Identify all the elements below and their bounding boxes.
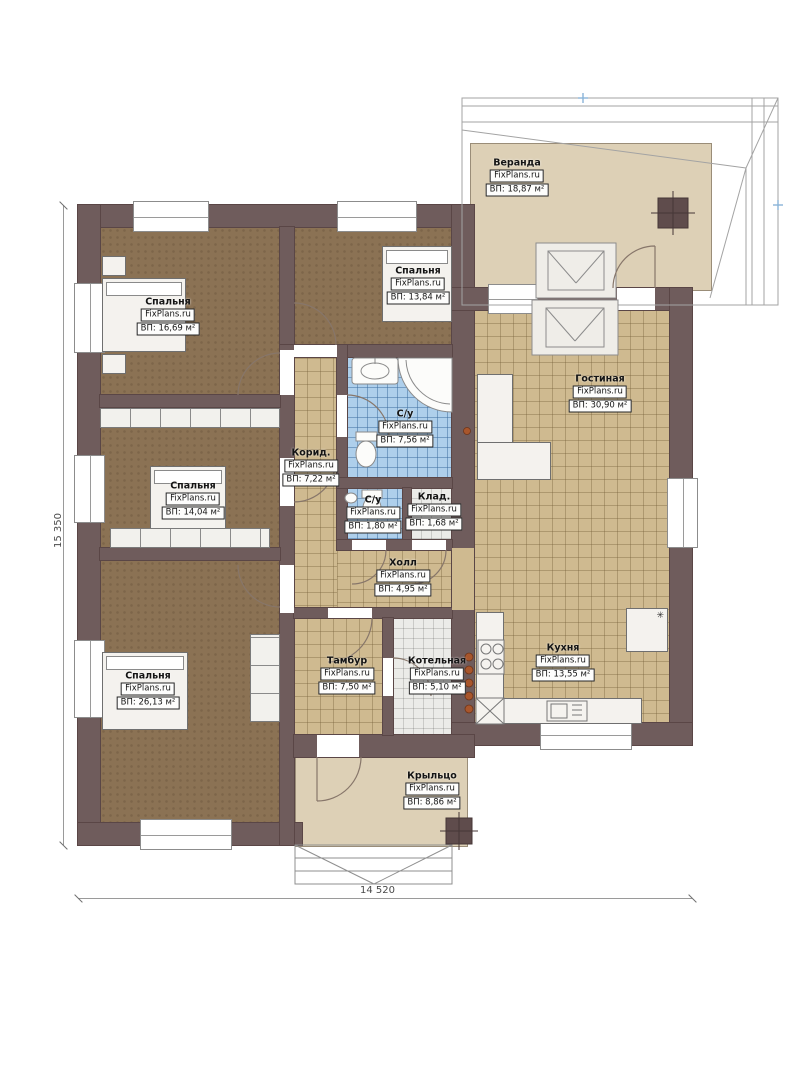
watermark: FixPlans.ru	[378, 421, 432, 434]
room-area: ВП: 18,87 м²	[486, 184, 549, 197]
room-name: Тамбур	[327, 656, 367, 667]
room-label-wc: С/у FixPlans.ru ВП: 1,80 м²	[344, 495, 401, 534]
window	[74, 283, 105, 353]
fridge: ✳	[626, 608, 668, 652]
room-label-hall: Холл FixPlans.ru ВП: 4,95 м²	[374, 558, 431, 597]
room-area: ВП: 5,10 м²	[408, 682, 465, 695]
room-area: ВП: 14,04 м²	[162, 507, 225, 520]
room-label-bedroom-3: Спальня FixPlans.ru ВП: 14,04 м²	[162, 481, 225, 520]
room-label-storage: Клад. FixPlans.ru ВП: 1,68 м²	[405, 492, 462, 531]
room-label-veranda: Веранда FixPlans.ru ВП: 18,87 м²	[486, 158, 549, 197]
floor-plan: ✳	[0, 0, 792, 1080]
door-opening-bedroom-1	[280, 350, 294, 395]
window	[667, 478, 698, 548]
watermark: FixPlans.ru	[410, 668, 464, 681]
wall-bathroom-bottom	[337, 478, 452, 488]
room-area: ВП: 7,50 м²	[318, 682, 375, 695]
door-opening-bedroom-2	[294, 345, 337, 357]
room-label-corridor: Корид. FixPlans.ru ВП: 7,22 м²	[282, 448, 339, 487]
room-area: ВП: 7,22 м²	[282, 474, 339, 487]
kitchen-counter	[476, 612, 504, 704]
door-opening-storage	[412, 540, 446, 550]
room-name: Спальня	[170, 481, 216, 492]
room-area: ВП: 4,95 м²	[374, 584, 431, 597]
watermark: FixPlans.ru	[407, 504, 461, 517]
wardrobe	[100, 408, 280, 428]
room-name: Веранда	[493, 158, 541, 169]
watermark: FixPlans.ru	[573, 386, 627, 399]
room-label-bedroom-2: Спальня FixPlans.ru ВП: 13,84 м²	[387, 266, 450, 305]
watermark: FixPlans.ru	[166, 493, 220, 506]
room-area: ВП: 13,55 м²	[532, 669, 595, 682]
room-name: Спальня	[125, 671, 171, 682]
dimension-line-bottom	[78, 898, 692, 899]
room-name: Крыльцо	[407, 771, 457, 782]
door-opening-bathroom	[337, 395, 347, 437]
room-name: Котельная	[408, 656, 466, 667]
watermark: FixPlans.ru	[346, 507, 400, 520]
wall-hall-bottom	[294, 608, 452, 618]
sofa	[477, 442, 551, 480]
room-label-boiler-room: Котельная FixPlans.ru ВП: 5,10 м²	[408, 656, 466, 695]
room-area: ВП: 30,90 м²	[569, 400, 632, 413]
watermark: FixPlans.ru	[376, 570, 430, 583]
window	[337, 201, 417, 232]
watermark: FixPlans.ru	[536, 655, 590, 668]
window	[140, 819, 232, 850]
wardrobe	[250, 634, 280, 722]
door-opening-boiler	[383, 658, 393, 696]
room-name: Гостиная	[575, 374, 624, 385]
kitchen-counter	[476, 698, 642, 724]
wall-bedroom1-bedroom3	[100, 395, 280, 407]
room-area: ВП: 8,86 м²	[403, 797, 460, 810]
room-label-bedroom-1: Спальня FixPlans.ru ВП: 16,69 м²	[137, 297, 200, 336]
room-name: Кухня	[547, 643, 580, 654]
door-opening-veranda	[617, 288, 655, 310]
watermark: FixPlans.ru	[391, 278, 445, 291]
room-area: ВП: 13,84 м²	[387, 292, 450, 305]
watermark: FixPlans.ru	[320, 668, 374, 681]
door-opening-bedroom-4	[280, 565, 294, 613]
window	[133, 201, 209, 232]
watermark: FixPlans.ru	[121, 683, 175, 696]
room-area: ВП: 1,68 м²	[405, 518, 462, 531]
watermark: FixPlans.ru	[405, 783, 459, 796]
window	[488, 284, 538, 314]
watermark: FixPlans.ru	[284, 460, 338, 473]
window	[74, 455, 105, 523]
room-name: Холл	[389, 558, 417, 569]
room-area: ВП: 1,80 м²	[344, 521, 401, 534]
room-area: ВП: 26,13 м²	[117, 697, 180, 710]
door-opening-entrance	[317, 735, 359, 757]
room-area: ВП: 16,69 м²	[137, 323, 200, 336]
dimension-height: 15 350	[53, 513, 64, 548]
room-label-tambour: Тамбур FixPlans.ru ВП: 7,50 м²	[318, 656, 375, 695]
room-name: Клад.	[418, 492, 450, 503]
passage-hall-living	[452, 548, 474, 610]
room-label-bathroom: С/у FixPlans.ru ВП: 7,56 м²	[376, 409, 433, 448]
room-label-kitchen: Кухня FixPlans.ru ВП: 13,55 м²	[532, 643, 595, 682]
room-name: С/у	[397, 409, 414, 420]
snowflake-icon: ✳	[656, 611, 664, 621]
room-name: Корид.	[291, 448, 330, 459]
window	[74, 640, 105, 718]
wall-bedroom3-bedroom4	[100, 548, 280, 560]
wall-bedroom-divider-vertical	[280, 227, 294, 845]
dimension-width: 14 520	[360, 885, 395, 896]
wardrobe	[110, 528, 270, 548]
room-area: ВП: 7,56 м²	[376, 435, 433, 448]
watermark: FixPlans.ru	[490, 170, 544, 183]
door-opening-wc	[352, 540, 386, 550]
room-name: С/у	[365, 495, 382, 506]
room-label-living-room: Гостиная FixPlans.ru ВП: 30,90 м²	[569, 374, 632, 413]
room-label-porch: Крыльцо FixPlans.ru ВП: 8,86 м²	[403, 771, 460, 810]
room-name: Спальня	[145, 297, 191, 308]
room-label-bedroom-4: Спальня FixPlans.ru ВП: 26,13 м²	[117, 671, 180, 710]
porch-steps	[295, 845, 452, 884]
nightstand	[102, 354, 126, 374]
nightstand	[102, 256, 126, 276]
room-name: Спальня	[395, 266, 441, 277]
door-opening-tambour	[328, 608, 372, 618]
watermark: FixPlans.ru	[141, 309, 195, 322]
